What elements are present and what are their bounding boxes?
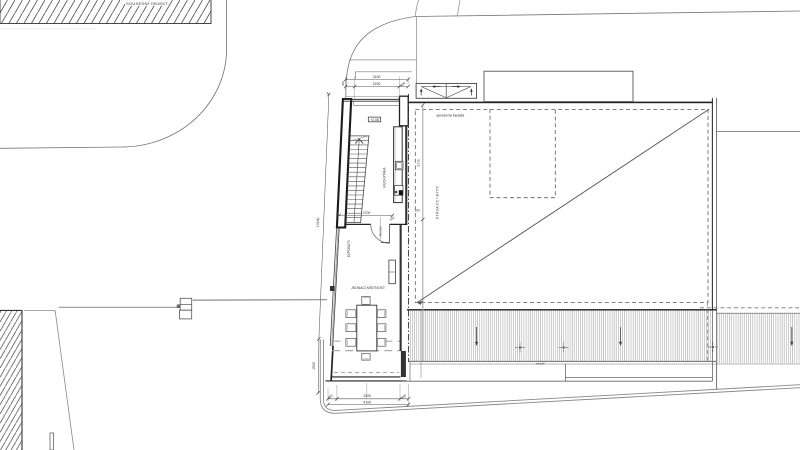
- svg-text:zábradlí: zábradlí: [536, 363, 545, 366]
- svg-text:EXPONÁTY: EXPONÁTY: [347, 239, 351, 257]
- svg-text:JEDNACÍ MÍSTNOST: JEDNACÍ MÍSTNOST: [351, 286, 386, 290]
- svg-text:5770: 5770: [417, 159, 421, 166]
- svg-text:900 1970: 900 1970: [380, 226, 383, 237]
- svg-text:3100: 3100: [373, 75, 381, 79]
- svg-text:13160: 13160: [316, 217, 320, 227]
- svg-text:1500: 1500: [312, 362, 316, 370]
- svg-text:3200: 3200: [363, 394, 371, 398]
- svg-text:upravená fasáda: upravená fasáda: [436, 114, 465, 118]
- svg-text:450: 450: [341, 81, 345, 86]
- svg-text:+2,08: +2,08: [370, 118, 379, 122]
- svg-text:2200: 2200: [373, 82, 381, 86]
- svg-text:2700: 2700: [363, 211, 371, 215]
- svg-text:STÁVAJÍCÍ BYTY: STÁVAJÍCÍ BYTY: [436, 185, 440, 219]
- svg-text:4100: 4100: [363, 400, 371, 404]
- svg-text:SOUSEDNÍ OBJEKT: SOUSEDNÍ OBJEKT: [126, 1, 168, 6]
- svg-text:KUCHYŇKA: KUCHYŇKA: [382, 167, 386, 188]
